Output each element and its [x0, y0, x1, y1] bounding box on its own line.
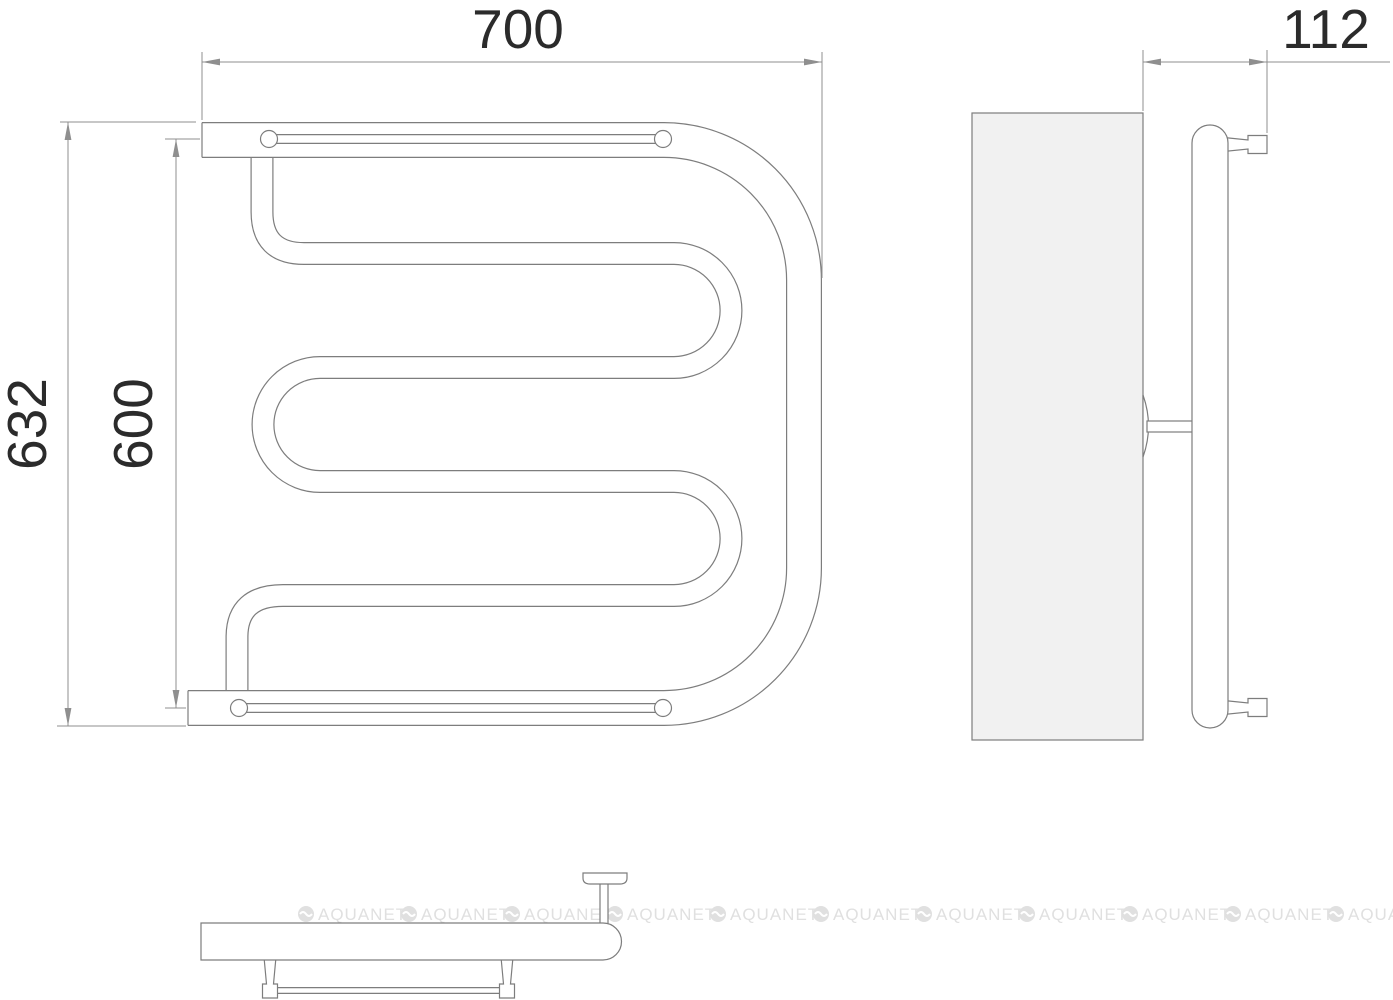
watermark: AQUANET: [1019, 905, 1128, 924]
svg-text:AQUANET: AQUANET: [1039, 905, 1128, 924]
bar-end-right: [655, 700, 672, 717]
svg-text:AQUANET: AQUANET: [936, 905, 1025, 924]
towel-bar-underside: [263, 957, 515, 998]
watermark: AQUANET: [1328, 905, 1393, 924]
svg-text:AQUANET: AQUANET: [1348, 905, 1393, 924]
serpentine-tube: [237, 146, 731, 704]
dim-width-value: 700: [472, 0, 564, 60]
dim-overall-height-value: 632: [0, 378, 58, 470]
svg-text:AQUANET: AQUANET: [833, 905, 922, 924]
side-tube: [1192, 125, 1228, 728]
watermark: AQUANET: [916, 905, 1025, 924]
watermark: AQUANET: [1225, 905, 1334, 924]
watermark: AQUANET: [607, 905, 716, 924]
bar-support-left: [263, 957, 278, 998]
watermark-row: AQUANET AQUANET AQUANET AQUANET AQUANET …: [298, 905, 1393, 924]
bar-support-right: [500, 957, 515, 998]
watermark: AQUANET: [710, 905, 819, 924]
svg-text:AQUANET: AQUANET: [730, 905, 819, 924]
towel-rail-drawing: AQUANET AQUANET AQUANET AQUANET AQUANET …: [0, 0, 1393, 1000]
watermark: AQUANET: [813, 905, 922, 924]
dimension-axis-height: 600: [102, 139, 200, 708]
bracket-arm: [1147, 421, 1196, 432]
drawing-canvas: AQUANET AQUANET AQUANET AQUANET AQUANET …: [0, 0, 1393, 1000]
dimension-depth: 112: [1143, 0, 1390, 133]
dim-axis-height-value: 600: [102, 378, 164, 470]
dimension-overall-height: 632: [0, 122, 196, 726]
wall-flange: [583, 873, 627, 884]
bottom-tube: [201, 923, 622, 960]
watermark: AQUANET: [401, 905, 510, 924]
bar-end-right: [655, 131, 672, 148]
pipe-fitting-top: [1224, 136, 1267, 154]
svg-text:AQUANET: AQUANET: [318, 905, 407, 924]
pipe-fitting-bottom: [1224, 699, 1267, 717]
bar-end-left: [261, 131, 278, 148]
svg-text:AQUANET: AQUANET: [627, 905, 716, 924]
watermark: AQUANET: [504, 905, 613, 924]
front-view: [188, 123, 804, 726]
bar-end-left: [231, 700, 248, 717]
bracket-riser: [600, 879, 608, 927]
svg-text:AQUANET: AQUANET: [1245, 905, 1334, 924]
dim-depth-value: 112: [1282, 0, 1370, 60]
watermark: AQUANET: [298, 905, 407, 924]
svg-text:AQUANET: AQUANET: [1142, 905, 1231, 924]
svg-text:AQUANET: AQUANET: [421, 905, 510, 924]
watermark: AQUANET: [1122, 905, 1231, 924]
collector-tube: [188, 140, 804, 708]
side-view: [972, 113, 1267, 740]
bottom-view: [201, 873, 627, 998]
wall-panel: [972, 113, 1143, 740]
